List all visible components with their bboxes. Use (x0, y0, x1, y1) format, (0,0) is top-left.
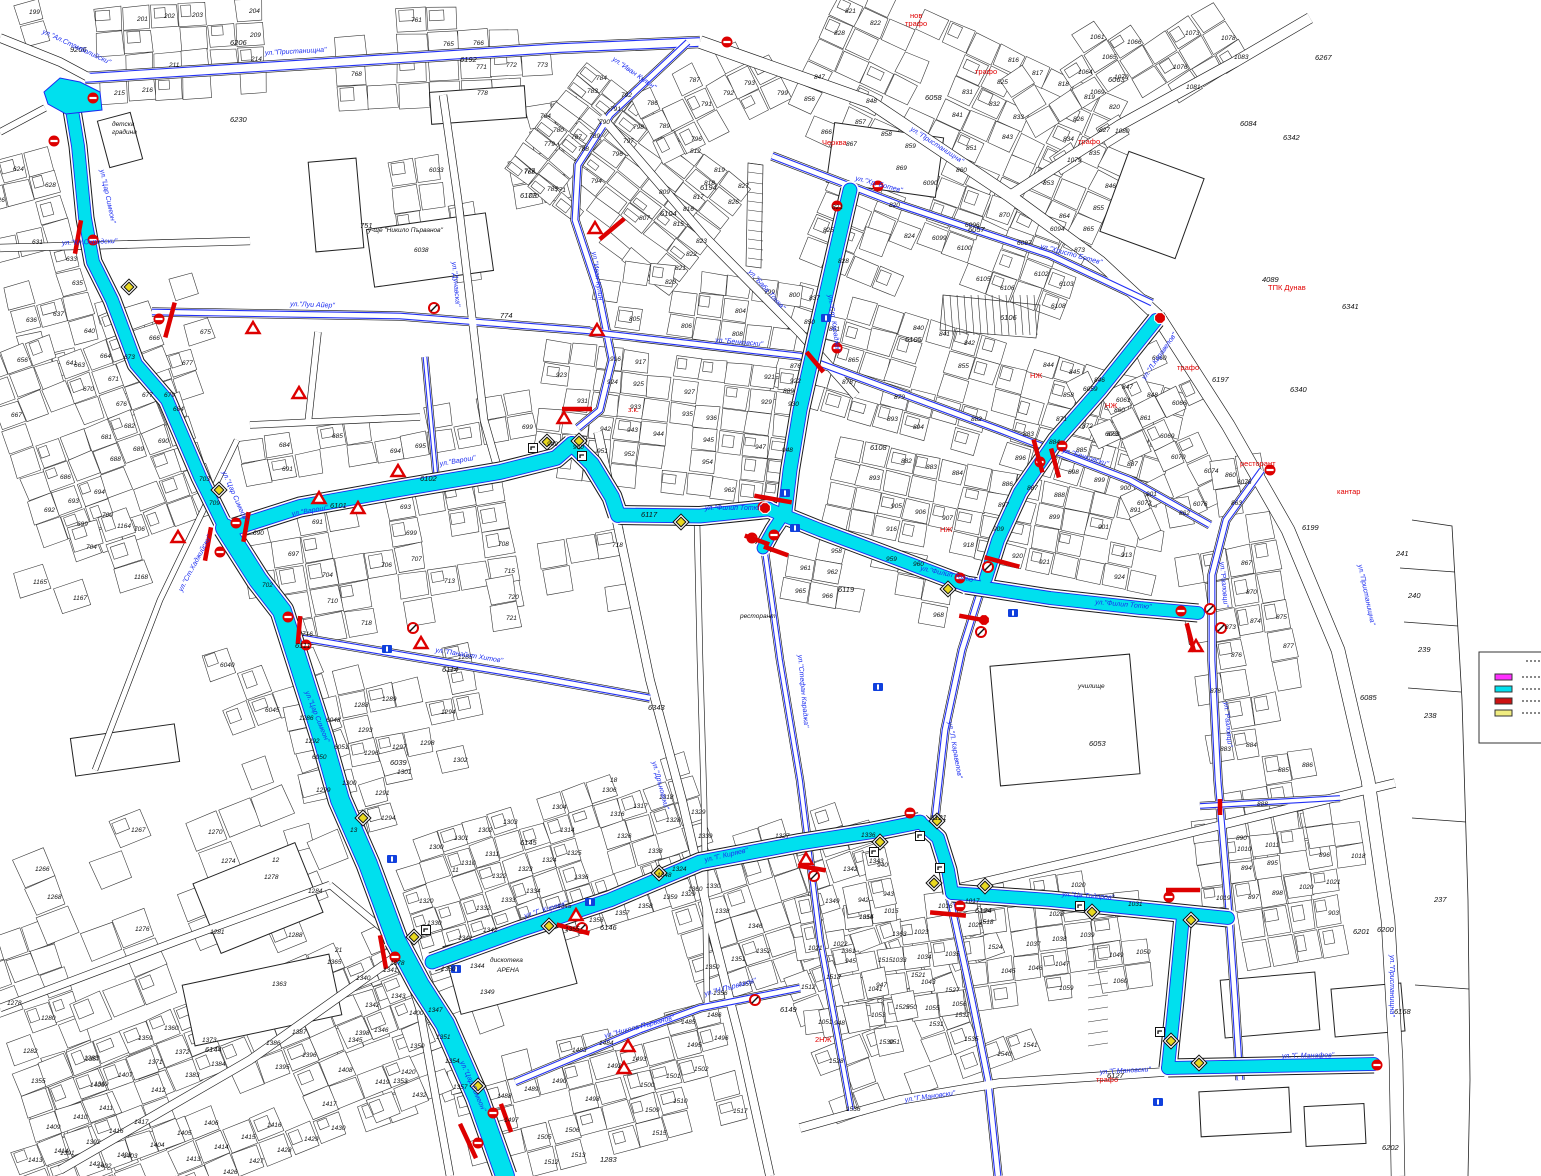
svg-text:239: 239 (1417, 645, 1431, 654)
svg-text:703: 703 (199, 476, 210, 483)
svg-text:1039: 1039 (1080, 932, 1095, 939)
svg-text:6124: 6124 (975, 906, 992, 915)
svg-text:1485: 1485 (681, 1019, 696, 1026)
svg-text:6105: 6105 (905, 335, 923, 344)
svg-text:691: 691 (312, 519, 323, 526)
svg-text:864: 864 (1059, 213, 1070, 220)
svg-text:21: 21 (334, 947, 343, 954)
svg-text:1061: 1061 (1090, 34, 1105, 41)
svg-text:трафо: трафо (1096, 1075, 1118, 1084)
svg-text:6194: 6194 (700, 183, 717, 192)
svg-text:1509: 1509 (645, 1107, 660, 1114)
svg-text:872: 872 (1082, 423, 1093, 430)
svg-text:827: 827 (738, 183, 749, 190)
svg-text:1411: 1411 (99, 1105, 113, 1112)
svg-text:1336: 1336 (574, 874, 589, 881)
svg-text:828: 828 (838, 258, 849, 265)
svg-text:1413: 1413 (28, 1157, 43, 1164)
svg-text:765: 765 (443, 41, 454, 48)
svg-text:789: 789 (589, 133, 600, 140)
svg-text:897: 897 (998, 502, 1009, 509)
svg-text:783: 783 (587, 88, 598, 95)
svg-text:201: 201 (136, 16, 148, 23)
svg-text:1046: 1046 (1028, 965, 1043, 972)
svg-text:1498: 1498 (585, 1096, 600, 1103)
svg-text:905: 905 (891, 503, 902, 510)
svg-text:6090: 6090 (923, 180, 938, 187)
svg-text:1409: 1409 (46, 1124, 61, 1131)
svg-text:6108: 6108 (1051, 303, 1066, 310)
svg-text:6102: 6102 (420, 474, 438, 483)
svg-text:894: 894 (913, 424, 924, 431)
svg-text:1422: 1422 (117, 1152, 132, 1159)
svg-text:764: 764 (540, 113, 551, 120)
svg-text:6199: 6199 (1302, 523, 1320, 532)
svg-text:860: 860 (956, 167, 967, 174)
svg-text:1059: 1059 (1059, 985, 1074, 992)
svg-text:887: 887 (1027, 485, 1038, 492)
svg-text:1073: 1073 (1185, 30, 1200, 37)
svg-text:6230: 6230 (230, 115, 248, 124)
svg-text:686: 686 (60, 474, 71, 481)
svg-text:1339: 1339 (698, 833, 713, 840)
svg-text:624: 624 (13, 166, 24, 173)
svg-text:626: 626 (0, 197, 5, 204)
svg-text:1080: 1080 (1115, 128, 1130, 135)
svg-text:882: 882 (971, 416, 982, 423)
svg-text:1053: 1053 (871, 1012, 886, 1019)
svg-text:1532: 1532 (955, 1012, 970, 1019)
svg-text:1347: 1347 (428, 1007, 443, 1014)
svg-text:1351: 1351 (731, 956, 746, 963)
svg-text:1413: 1413 (186, 1156, 201, 1163)
svg-text:901: 901 (1098, 524, 1109, 531)
svg-text:664: 664 (100, 353, 111, 360)
svg-text:6144: 6144 (205, 1045, 222, 1054)
svg-text:936: 936 (706, 415, 717, 422)
svg-text:959: 959 (886, 556, 897, 563)
svg-text:6342: 6342 (1283, 133, 1301, 142)
svg-text:853: 853 (1043, 180, 1054, 187)
svg-text:891: 891 (1130, 507, 1141, 514)
svg-text:1168: 1168 (134, 574, 148, 581)
svg-text:635: 635 (72, 280, 83, 287)
svg-text:784: 784 (596, 75, 607, 82)
svg-text:1361: 1361 (841, 948, 856, 955)
svg-text:842: 842 (964, 340, 975, 347)
svg-text:1527: 1527 (945, 987, 960, 994)
svg-text:1432: 1432 (412, 1092, 427, 1099)
svg-text:1357: 1357 (453, 1084, 468, 1091)
svg-text:694: 694 (390, 448, 401, 455)
svg-text:1495: 1495 (687, 1042, 702, 1049)
svg-text:трафо: трафо (905, 19, 927, 28)
svg-text:690: 690 (158, 438, 169, 445)
svg-text:1521: 1521 (911, 972, 926, 979)
svg-text:809: 809 (659, 189, 670, 196)
svg-text:787: 787 (689, 77, 700, 84)
svg-text:628: 628 (45, 182, 56, 189)
svg-text:1329: 1329 (681, 891, 696, 898)
svg-text:1069: 1069 (1090, 89, 1105, 96)
svg-text:633: 633 (66, 256, 77, 263)
svg-text:нов: нов (910, 11, 922, 20)
svg-text:1020: 1020 (1071, 882, 1086, 889)
svg-text:700: 700 (102, 512, 113, 519)
svg-text:1400: 1400 (409, 1010, 424, 1017)
svg-text:1352: 1352 (756, 948, 771, 955)
svg-text:6106: 6106 (1000, 285, 1015, 292)
svg-text:1014: 1014 (859, 914, 874, 921)
svg-text:1320: 1320 (419, 898, 434, 905)
svg-text:847: 847 (814, 74, 825, 81)
svg-text:899: 899 (1049, 514, 1060, 521)
svg-text:825: 825 (823, 227, 834, 234)
svg-text:1524: 1524 (988, 944, 1003, 951)
svg-text:1540: 1540 (997, 1051, 1012, 1058)
svg-text:1486: 1486 (707, 1012, 722, 1019)
svg-text:884: 884 (952, 470, 963, 477)
svg-text:831: 831 (962, 89, 973, 96)
svg-text:211: 211 (168, 62, 180, 69)
svg-text:826: 826 (728, 199, 739, 206)
svg-text:1278: 1278 (264, 874, 279, 881)
svg-text:6108: 6108 (870, 443, 888, 452)
svg-text:867: 867 (846, 141, 857, 148)
svg-text:1358: 1358 (638, 903, 653, 910)
svg-text:694: 694 (94, 489, 105, 496)
svg-text:840: 840 (913, 325, 924, 332)
svg-text:1428: 1428 (277, 1147, 292, 1154)
svg-text:835: 835 (1089, 150, 1100, 157)
svg-text:238: 238 (1423, 711, 1437, 720)
svg-text:847: 847 (1122, 384, 1133, 391)
svg-text:898: 898 (1272, 890, 1283, 897)
svg-text:11: 11 (452, 867, 459, 874)
svg-text:Черква: Черква (822, 138, 848, 147)
svg-text:920: 920 (1012, 553, 1023, 560)
svg-text:886: 886 (1002, 481, 1013, 488)
svg-text:702: 702 (262, 582, 273, 589)
svg-text:6119: 6119 (838, 585, 855, 594)
svg-text:1310: 1310 (461, 860, 476, 867)
svg-text:1022: 1022 (833, 941, 848, 948)
svg-text:214: 214 (250, 56, 262, 63)
svg-text:6063: 6063 (1108, 75, 1126, 84)
svg-text:817: 817 (1032, 70, 1043, 77)
svg-text:1342: 1342 (365, 1002, 380, 1009)
svg-text:816: 816 (683, 206, 694, 213)
svg-text:1341: 1341 (383, 967, 398, 974)
svg-text:707: 707 (411, 556, 422, 563)
svg-text:682: 682 (124, 423, 135, 430)
svg-text:1427: 1427 (249, 1158, 264, 1165)
svg-text:699: 699 (77, 521, 88, 528)
svg-text:1345: 1345 (348, 1037, 363, 1044)
svg-text:6076: 6076 (1193, 501, 1208, 508)
svg-text:884: 884 (1049, 439, 1060, 446)
svg-text:825: 825 (997, 79, 1008, 86)
svg-text:1354: 1354 (445, 1058, 460, 1065)
svg-text:859: 859 (905, 143, 916, 150)
svg-text:671: 671 (108, 376, 119, 383)
svg-text:924: 924 (607, 379, 618, 386)
svg-text:237: 237 (1433, 895, 1447, 904)
svg-text:1343: 1343 (391, 993, 406, 1000)
svg-text:1493: 1493 (632, 1056, 647, 1063)
svg-text:6201: 6201 (1353, 927, 1370, 936)
svg-text:240: 240 (1407, 591, 1421, 600)
svg-text:1034: 1034 (917, 954, 932, 961)
svg-text:трафо: трафо (1177, 363, 1199, 372)
svg-text:ул."Луи Айер": ул."Луи Айер" (289, 300, 336, 310)
svg-text:877: 877 (1283, 643, 1294, 650)
svg-text:1028: 1028 (1049, 911, 1064, 918)
svg-text:870: 870 (1246, 589, 1257, 596)
svg-text:6111: 6111 (295, 641, 311, 650)
svg-text:1349: 1349 (480, 989, 495, 996)
svg-text:821: 821 (675, 265, 686, 272)
svg-text:882: 882 (901, 458, 912, 465)
svg-text:6267: 6267 (1315, 53, 1333, 62)
svg-text:841: 841 (939, 331, 950, 338)
svg-text:966: 966 (822, 593, 833, 600)
svg-text:822: 822 (686, 251, 697, 258)
svg-text:900: 900 (1120, 485, 1131, 492)
svg-text:789: 789 (659, 123, 670, 130)
svg-text:833: 833 (1013, 114, 1024, 121)
svg-text:684: 684 (279, 442, 290, 449)
svg-text:925: 925 (633, 381, 644, 388)
svg-text:1064: 1064 (1078, 69, 1093, 76)
svg-text:962: 962 (827, 569, 838, 576)
svg-text:766: 766 (473, 40, 484, 47)
svg-text:6040: 6040 (220, 662, 235, 669)
svg-text:954: 954 (702, 459, 713, 466)
svg-text:1325: 1325 (567, 850, 582, 857)
svg-text:6069: 6069 (1160, 433, 1175, 440)
svg-text:1346: 1346 (374, 1027, 389, 1034)
svg-text:690: 690 (253, 530, 264, 537)
svg-text:6085: 6085 (1360, 693, 1378, 702)
svg-text:822: 822 (870, 20, 881, 27)
svg-text:трафо: трафо (975, 67, 997, 76)
svg-text:720: 720 (508, 594, 519, 601)
svg-text:1083: 1083 (1234, 54, 1249, 61)
svg-text:777: 777 (524, 168, 535, 175)
svg-text:6105: 6105 (976, 276, 991, 283)
svg-text:АРЕНА: АРЕНА (496, 967, 519, 974)
svg-text:876: 876 (1231, 652, 1242, 659)
svg-text:1500: 1500 (640, 1082, 655, 1089)
svg-text:1055: 1055 (925, 1005, 940, 1012)
svg-text:1322: 1322 (492, 873, 507, 880)
svg-text:6058: 6058 (925, 93, 943, 102)
svg-text:921: 921 (764, 374, 775, 381)
svg-text:1355: 1355 (565, 926, 580, 933)
svg-text:1501: 1501 (666, 1073, 681, 1080)
svg-text:6149: 6149 (780, 1005, 798, 1014)
svg-text:6039: 6039 (390, 758, 408, 767)
svg-text:1420: 1420 (401, 1069, 416, 1076)
svg-text:824: 824 (904, 233, 915, 240)
svg-text:1531: 1531 (929, 1021, 944, 1028)
svg-text:1296: 1296 (364, 750, 379, 757)
svg-text:865: 865 (848, 357, 859, 364)
svg-text:697: 697 (288, 551, 299, 558)
svg-text:6102: 6102 (1034, 271, 1049, 278)
svg-text:689: 689 (133, 446, 144, 453)
svg-text:ресторант: ресторант (1240, 459, 1276, 468)
svg-text:947: 947 (876, 982, 887, 989)
svg-text:768: 768 (351, 71, 362, 78)
svg-text:1360: 1360 (164, 1025, 179, 1032)
svg-text:846: 846 (1105, 183, 1116, 190)
svg-text:6168: 6168 (1394, 1007, 1412, 1016)
svg-text:879: 879 (894, 394, 905, 401)
svg-text:788: 788 (578, 146, 589, 153)
svg-text:1350: 1350 (705, 964, 720, 971)
svg-text:792: 792 (723, 90, 734, 97)
svg-text:942: 942 (600, 426, 611, 433)
svg-text:6063: 6063 (1105, 431, 1120, 438)
svg-text:6051: 6051 (334, 744, 349, 751)
svg-text:663: 663 (74, 362, 85, 369)
svg-text:876: 876 (790, 363, 801, 370)
svg-text:1505: 1505 (537, 1134, 552, 1141)
svg-text:870: 870 (999, 212, 1010, 219)
svg-text:1395: 1395 (275, 1064, 290, 1071)
svg-text:ул."Филип Тотю": ул."Филип Тотю" (704, 505, 762, 512)
svg-text:241: 241 (1395, 549, 1409, 558)
svg-text:1167: 1167 (73, 595, 87, 602)
svg-text:1276: 1276 (135, 926, 150, 933)
svg-text:ресторант: ресторант (739, 613, 776, 620)
svg-text:1392: 1392 (86, 1139, 101, 1146)
svg-text:1314: 1314 (560, 827, 575, 834)
svg-text:6192: 6192 (460, 55, 478, 64)
svg-text:1021: 1021 (808, 945, 823, 952)
svg-text:1363: 1363 (272, 981, 287, 988)
svg-text:з.к.: з.к. (628, 405, 639, 414)
svg-text:1353: 1353 (393, 1078, 408, 1085)
svg-text:888: 888 (1054, 492, 1065, 499)
svg-text:1267: 1267 (131, 827, 146, 834)
svg-text:1079: 1079 (1067, 157, 1082, 164)
svg-text:950: 950 (573, 444, 584, 451)
svg-text:952: 952 (624, 451, 635, 458)
svg-text:773: 773 (537, 62, 548, 69)
svg-text:778: 778 (477, 90, 488, 97)
svg-text:855: 855 (1093, 205, 1104, 212)
svg-text:1292: 1292 (305, 738, 320, 745)
svg-text:1019: 1019 (1216, 895, 1231, 902)
svg-text:1038: 1038 (1052, 936, 1067, 943)
svg-text:1513: 1513 (826, 974, 841, 981)
svg-text:1288: 1288 (288, 932, 303, 939)
svg-text:1303: 1303 (503, 819, 518, 826)
svg-text:1373: 1373 (202, 1037, 217, 1044)
svg-text:1365: 1365 (327, 959, 342, 966)
svg-text:887: 887 (1127, 461, 1138, 468)
svg-text:965: 965 (795, 588, 806, 595)
svg-text:1497: 1497 (504, 1117, 519, 1124)
svg-text:800: 800 (789, 292, 800, 299)
svg-text:761: 761 (411, 17, 422, 24)
svg-text:6101: 6101 (330, 501, 347, 510)
svg-text:детска: детска (112, 120, 135, 128)
svg-text:930: 930 (788, 401, 799, 408)
svg-text:631: 631 (32, 239, 43, 246)
svg-text:780: 780 (553, 127, 564, 134)
svg-text:1037: 1037 (1026, 941, 1041, 948)
svg-text:1010: 1010 (1237, 846, 1252, 853)
svg-text:677: 677 (142, 392, 153, 399)
svg-text:1324: 1324 (672, 866, 687, 873)
svg-text:948: 948 (834, 1020, 845, 1027)
svg-text:204: 204 (248, 8, 260, 15)
svg-text:1023: 1023 (914, 929, 929, 936)
svg-text:888: 888 (1257, 801, 1268, 808)
svg-text:858: 858 (1063, 392, 1074, 399)
svg-text:1299: 1299 (316, 787, 331, 794)
svg-text:1338: 1338 (648, 848, 663, 855)
svg-text:1031: 1031 (1128, 901, 1143, 908)
svg-text:1350: 1350 (410, 1043, 425, 1050)
svg-text:691: 691 (282, 466, 293, 473)
svg-text:1056: 1056 (952, 1001, 967, 1008)
svg-text:704: 704 (86, 544, 97, 551)
svg-text:6340: 6340 (1290, 385, 1308, 394)
svg-text:906: 906 (915, 509, 926, 516)
svg-text:1406: 1406 (204, 1120, 219, 1127)
svg-text:6100: 6100 (957, 245, 972, 252)
svg-text:857: 857 (855, 119, 866, 126)
svg-text:826: 826 (1073, 116, 1084, 123)
svg-text:791: 791 (610, 106, 621, 113)
svg-text:1051: 1051 (818, 1019, 833, 1026)
svg-text:1336: 1336 (861, 832, 876, 839)
svg-text:685: 685 (332, 433, 343, 440)
svg-text:909: 909 (993, 526, 1004, 533)
svg-text:1050: 1050 (1136, 949, 1151, 956)
svg-text:6106: 6106 (1000, 313, 1018, 322)
svg-text:1288: 1288 (354, 702, 369, 709)
svg-text:793: 793 (744, 80, 755, 87)
svg-text:1506: 1506 (565, 1127, 580, 1134)
svg-text:816: 816 (1008, 57, 1019, 64)
svg-text:860: 860 (1225, 472, 1236, 479)
svg-text:1297: 1297 (392, 744, 407, 751)
svg-text:916: 916 (610, 356, 621, 363)
svg-text:1346: 1346 (748, 923, 763, 930)
svg-text:1350: 1350 (441, 966, 456, 973)
svg-text:1341: 1341 (458, 935, 473, 942)
svg-text:1333: 1333 (501, 897, 516, 904)
svg-text:894: 894 (1241, 865, 1252, 872)
svg-text:6045: 6045 (265, 707, 280, 714)
svg-text:6094: 6094 (1050, 226, 1065, 233)
svg-text:6146: 6146 (600, 923, 618, 932)
svg-text:ул."Пристанищна": ул."Пристанищна" (1388, 954, 1395, 1017)
svg-text:797: 797 (623, 138, 634, 145)
svg-text:1300: 1300 (429, 844, 444, 851)
svg-text:1372: 1372 (175, 1049, 190, 1056)
svg-text:1076: 1076 (1173, 64, 1188, 71)
svg-text:1359: 1359 (663, 894, 678, 901)
svg-text:6121: 6121 (930, 813, 947, 822)
svg-text:6103: 6103 (520, 191, 538, 200)
